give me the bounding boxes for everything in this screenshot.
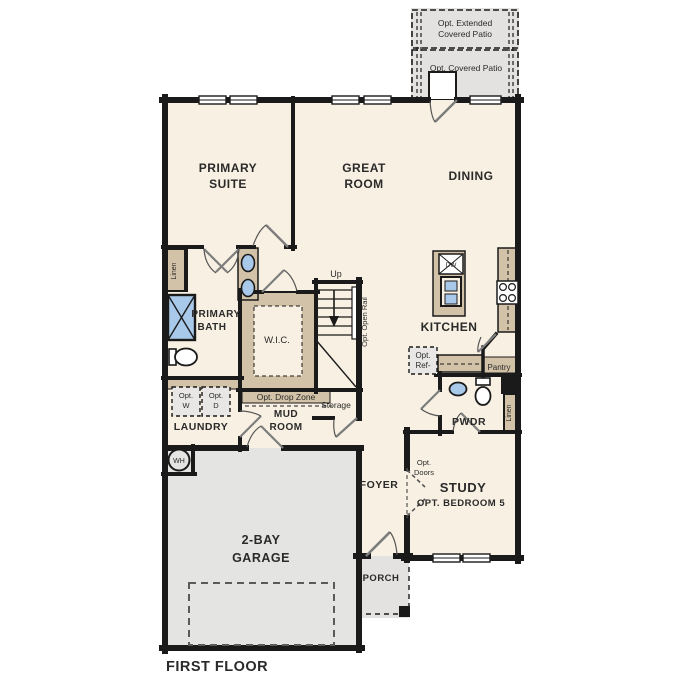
patio-extended-label-2: Covered Patio: [438, 29, 492, 39]
label-porch: PORCH: [363, 573, 400, 584]
stairs: [316, 283, 359, 389]
vanity-sink-2: [242, 280, 255, 297]
cooktop: [497, 281, 518, 304]
chase: [501, 376, 517, 394]
garage-floor: [165, 448, 359, 648]
label-mud-room-1: MUD: [274, 409, 298, 420]
toilet-powder: [476, 378, 491, 405]
label-linen-hall: Linen: [506, 404, 513, 421]
water-heater-label: WH: [173, 458, 185, 465]
window: [470, 96, 501, 104]
label-great-room-2: ROOM: [344, 177, 383, 191]
label-pwdr: PWDR: [452, 416, 486, 428]
label-opt-ref-2: Ref-: [415, 361, 430, 370]
label-laundry: LAUNDRY: [174, 421, 228, 433]
label-stairs-up: Up: [330, 269, 342, 279]
label-opt-doors-1: Opt.: [417, 458, 431, 467]
label-pantry: Pantry: [487, 363, 510, 372]
vanity-sink-1: [242, 255, 255, 272]
label-open-rail: Opt. Open Rail: [360, 297, 369, 347]
label-dishwasher: DW: [446, 262, 458, 269]
label-garage-2: GARAGE: [232, 551, 290, 565]
plan-title: FIRST FLOOR: [166, 659, 268, 675]
label-opt-d-1: Opt.: [209, 391, 223, 400]
label-primary-suite-1: PRIMARY: [199, 161, 257, 175]
patio-extended-label-1: Opt. Extended: [438, 18, 493, 28]
window: [199, 96, 226, 104]
label-garage-1: 2-BAY: [242, 533, 281, 547]
window: [332, 96, 359, 104]
label-dining: DINING: [449, 169, 494, 183]
porch-post: [399, 606, 410, 617]
powder-sink: [450, 383, 467, 396]
label-foyer: FOYER: [360, 479, 399, 491]
window: [433, 554, 460, 562]
patio-step: [429, 72, 456, 100]
label-opt-doors-2: Doors: [414, 468, 434, 477]
floor-plan-page: Opt. Extended Covered Patio Opt. Covered…: [0, 0, 687, 687]
label-opt-w-2: W: [182, 401, 190, 410]
label-great-room-1: GREAT: [342, 161, 386, 175]
label-kitchen: KITCHEN: [421, 320, 478, 334]
optional-patios: Opt. Extended Covered Patio Opt. Covered…: [411, 8, 519, 102]
label-storage: Storage: [321, 400, 351, 410]
label-mud-room-2: ROOM: [269, 422, 302, 433]
label-primary-bath-1: PRIMARY: [191, 309, 240, 320]
kitchen-sink: [441, 277, 461, 306]
label-linen-bath: Linen: [171, 262, 178, 279]
label-primary-suite-2: SUITE: [209, 177, 247, 191]
window: [364, 96, 391, 104]
label-study: STUDY: [440, 480, 487, 495]
label-primary-bath-2: BATH: [197, 322, 226, 333]
covered-patio-outline: [412, 50, 518, 100]
label-study-opt: OPT. BEDROOM 5: [417, 498, 506, 509]
window: [463, 554, 490, 562]
label-wic: W.I.C.: [264, 335, 290, 346]
label-opt-ref-1: Opt.: [415, 351, 430, 360]
label-opt-d-2: D: [213, 401, 219, 410]
floor-plan-drawing: Opt. Extended Covered Patio Opt. Covered…: [0, 0, 687, 687]
window: [230, 96, 257, 104]
toilet-bath: [169, 349, 197, 366]
water-heater: WH: [169, 450, 190, 471]
label-drop-zone: Opt. Drop Zone: [257, 392, 316, 402]
label-opt-w-1: Opt.: [179, 391, 193, 400]
